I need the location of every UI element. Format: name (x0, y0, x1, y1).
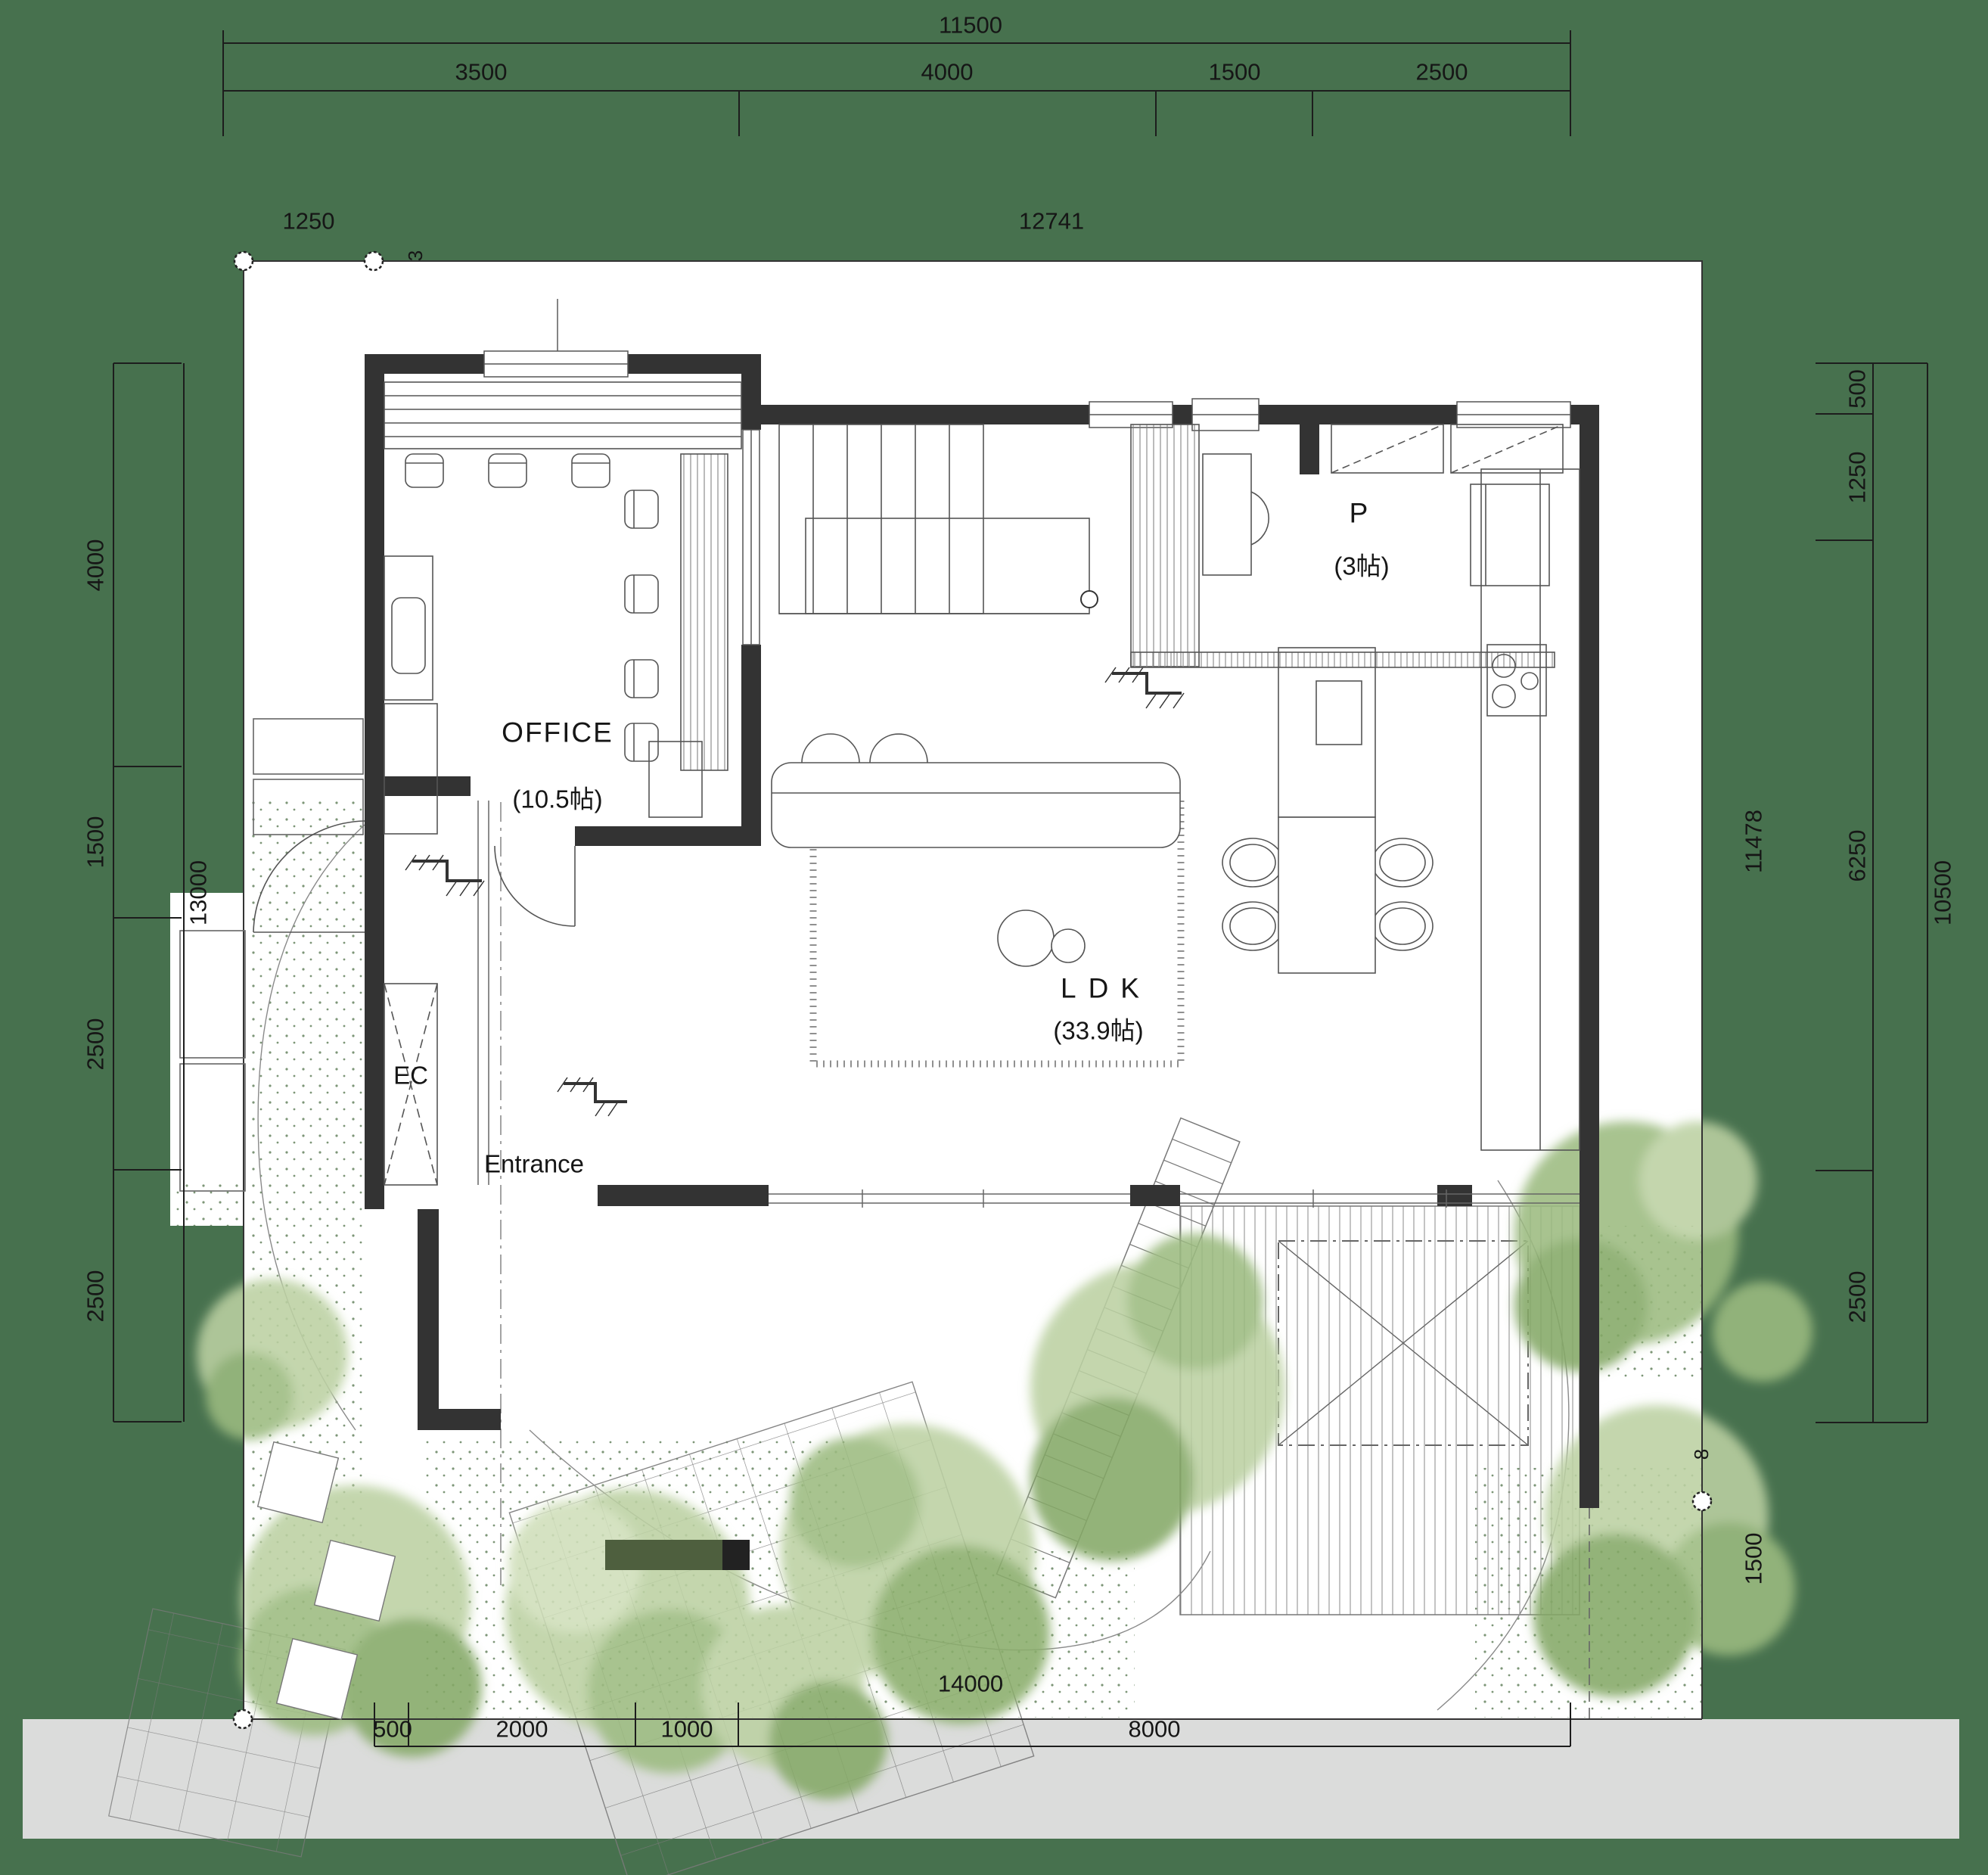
dim-right-outer: 11478 (1742, 810, 1766, 873)
dim-bottom-seg-4: 8000 (1129, 1718, 1181, 1741)
dim-bottom-seg-1: 500 (373, 1718, 412, 1741)
dim-top-seg-3: 1500 (1209, 61, 1261, 84)
office-chairs-top (405, 454, 610, 487)
ldk-area-label: (33.9帖) (1053, 1018, 1143, 1043)
pantry-furniture (1131, 424, 1563, 667)
dim-right-seg-3: 6250 (1846, 830, 1869, 882)
office-label: OFFICE (502, 719, 613, 747)
dim-left-seg-3: 2500 (84, 1018, 107, 1071)
column-marker (1081, 591, 1098, 608)
entrance-closet-label: EC (393, 1063, 428, 1088)
dim-top-seg-4: 2500 (1416, 61, 1468, 84)
dim-boundary-mark-3: 3 (405, 250, 425, 261)
dim-right-mark-8: 8 (1691, 1449, 1711, 1460)
dim-right-seg-2: 1250 (1846, 452, 1869, 504)
ldk-label: LDK (1061, 975, 1151, 1003)
dim-right-seg-4: 2500 (1846, 1271, 1869, 1323)
dim-top-seg-1: 3500 (455, 61, 508, 84)
dim-boundary-span: 12741 (1019, 210, 1084, 233)
dim-right-total: 10500 (1931, 860, 1955, 925)
dim-right-lower: 1500 (1742, 1533, 1766, 1585)
dim-bottom-seg-3: 1000 (661, 1718, 713, 1741)
dim-bottom-seg-2: 2000 (496, 1718, 548, 1741)
office-furniture (384, 382, 741, 834)
entrance-label: Entrance (484, 1152, 584, 1177)
office-chairs-right (625, 490, 658, 761)
pantry-shelves (1331, 424, 1563, 473)
dim-top-total: 11500 (939, 14, 1002, 37)
dining-set (1222, 817, 1433, 973)
dim-left-seg-4: 2500 (84, 1270, 107, 1323)
living-area (772, 734, 1181, 1064)
garden-bench (605, 1540, 750, 1570)
staircase (779, 424, 1089, 614)
office-area-label: (10.5帖) (512, 787, 602, 812)
pantry-label: P (1350, 499, 1370, 527)
dim-top-seg-2: 4000 (921, 61, 974, 84)
pantry-area-label: (3帖) (1334, 554, 1389, 579)
kitchen-island (1278, 648, 1375, 817)
dim-bottom-total: 14000 (938, 1672, 1003, 1696)
floor-plan-canvas: OFFICE (10.5帖) P (3帖) LDK (33.9帖) EC Ent… (0, 0, 1988, 1875)
dim-left-seg-2: 1500 (84, 816, 107, 869)
dim-right-seg-1: 500 (1846, 369, 1869, 409)
dim-left-seg-1: 4000 (84, 539, 107, 592)
dim-left-total: 13000 (187, 860, 210, 925)
kitchen (1278, 469, 1580, 1150)
plan-linework (0, 0, 1988, 1875)
dim-boundary-left: 1250 (283, 210, 335, 233)
